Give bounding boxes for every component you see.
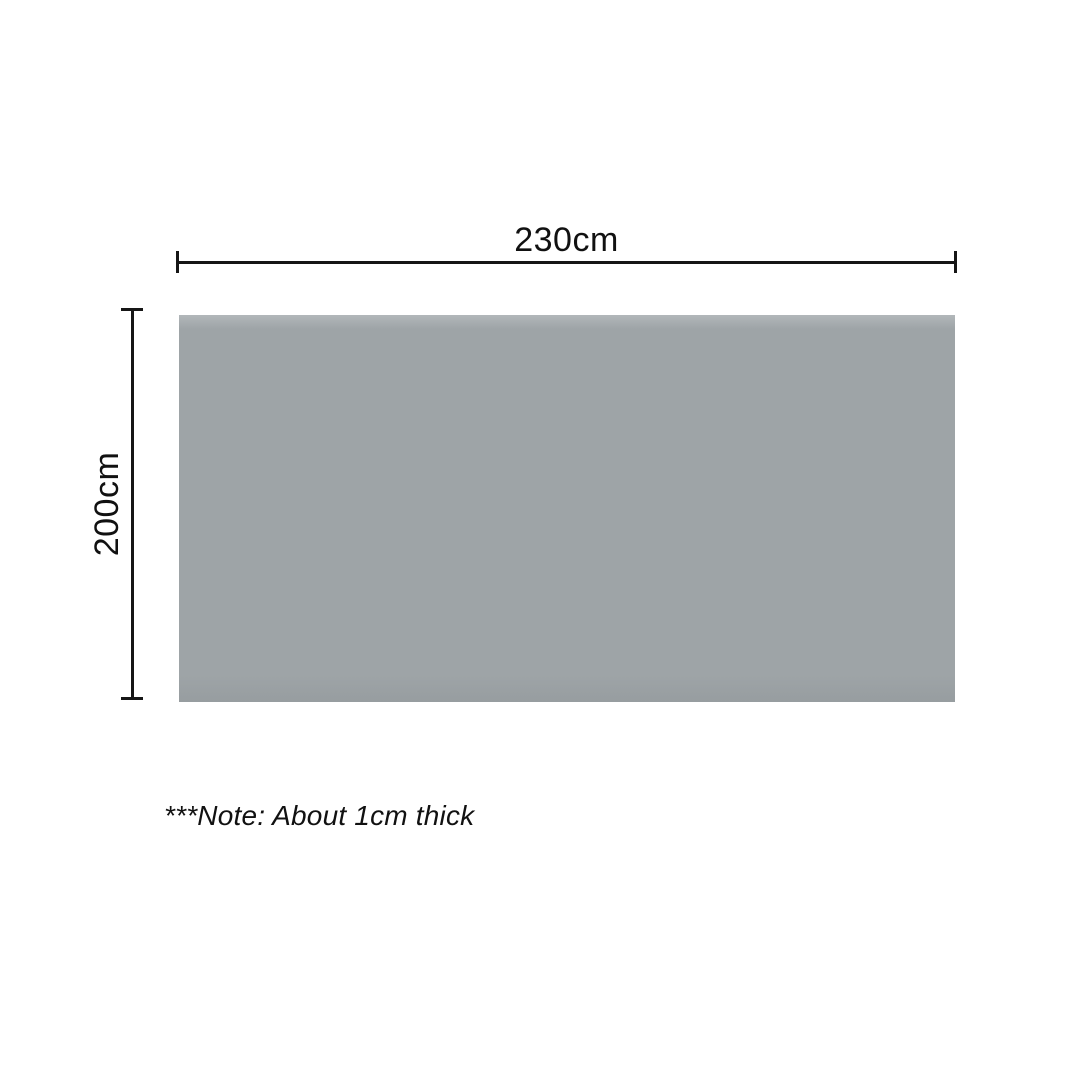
width-dimension: 230cm <box>176 251 957 273</box>
height-dimension: 200cm <box>121 308 143 700</box>
width-dimension-right-tick <box>954 251 957 273</box>
product-dimension-diagram: 230cm 200cm ***Note: About 1cm thick <box>0 0 1080 1080</box>
height-dimension-bottom-tick <box>121 697 143 700</box>
width-dimension-label: 230cm <box>176 223 957 257</box>
height-dimension-label: 200cm <box>90 452 124 557</box>
width-dimension-line <box>176 261 957 264</box>
thickness-note: ***Note: About 1cm thick <box>164 800 474 832</box>
product-rectangle <box>179 315 955 702</box>
height-dimension-line <box>131 308 134 700</box>
